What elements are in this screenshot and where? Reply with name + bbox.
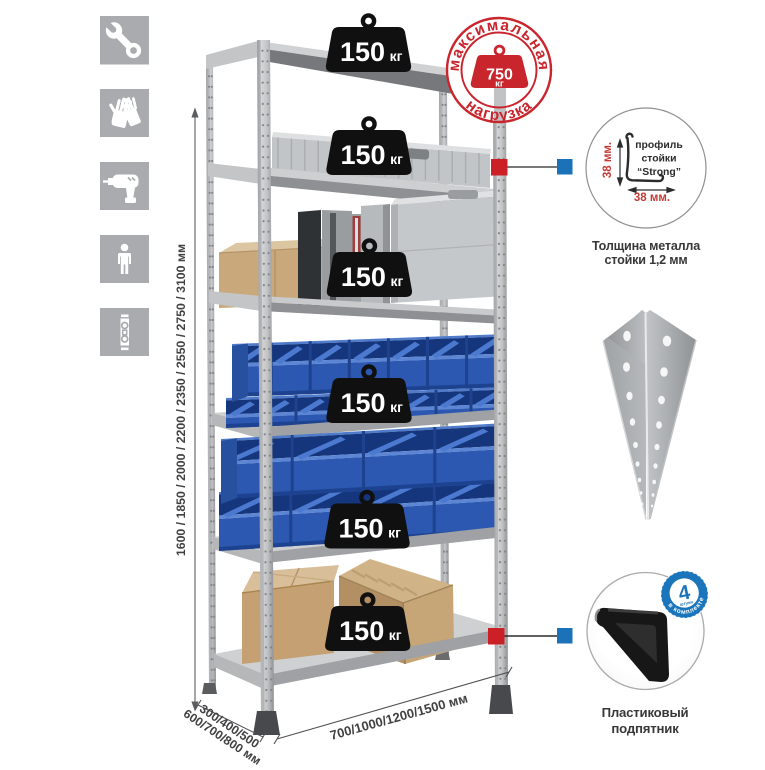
svg-text:стойки 1,2 мм: стойки 1,2 мм — [604, 253, 687, 267]
svg-text:стойки: стойки — [641, 154, 676, 165]
svg-text:1600 / 1850 / 2000 / 2200 / 23: 1600 / 1850 / 2000 / 2200 / 2350 / 2550 … — [174, 244, 188, 556]
svg-text:Пластиковый: Пластиковый — [602, 705, 689, 720]
svg-text:подпятник: подпятник — [611, 721, 679, 736]
svg-text:Толщина металла: Толщина металла — [592, 239, 701, 253]
svg-text:38 мм.: 38 мм. — [634, 192, 670, 204]
svg-text:“Strong”: “Strong” — [637, 167, 681, 178]
svg-text:профиль: профиль — [635, 139, 682, 151]
svg-text:кг: кг — [495, 79, 504, 90]
svg-text:38 мм.: 38 мм. — [602, 142, 614, 178]
